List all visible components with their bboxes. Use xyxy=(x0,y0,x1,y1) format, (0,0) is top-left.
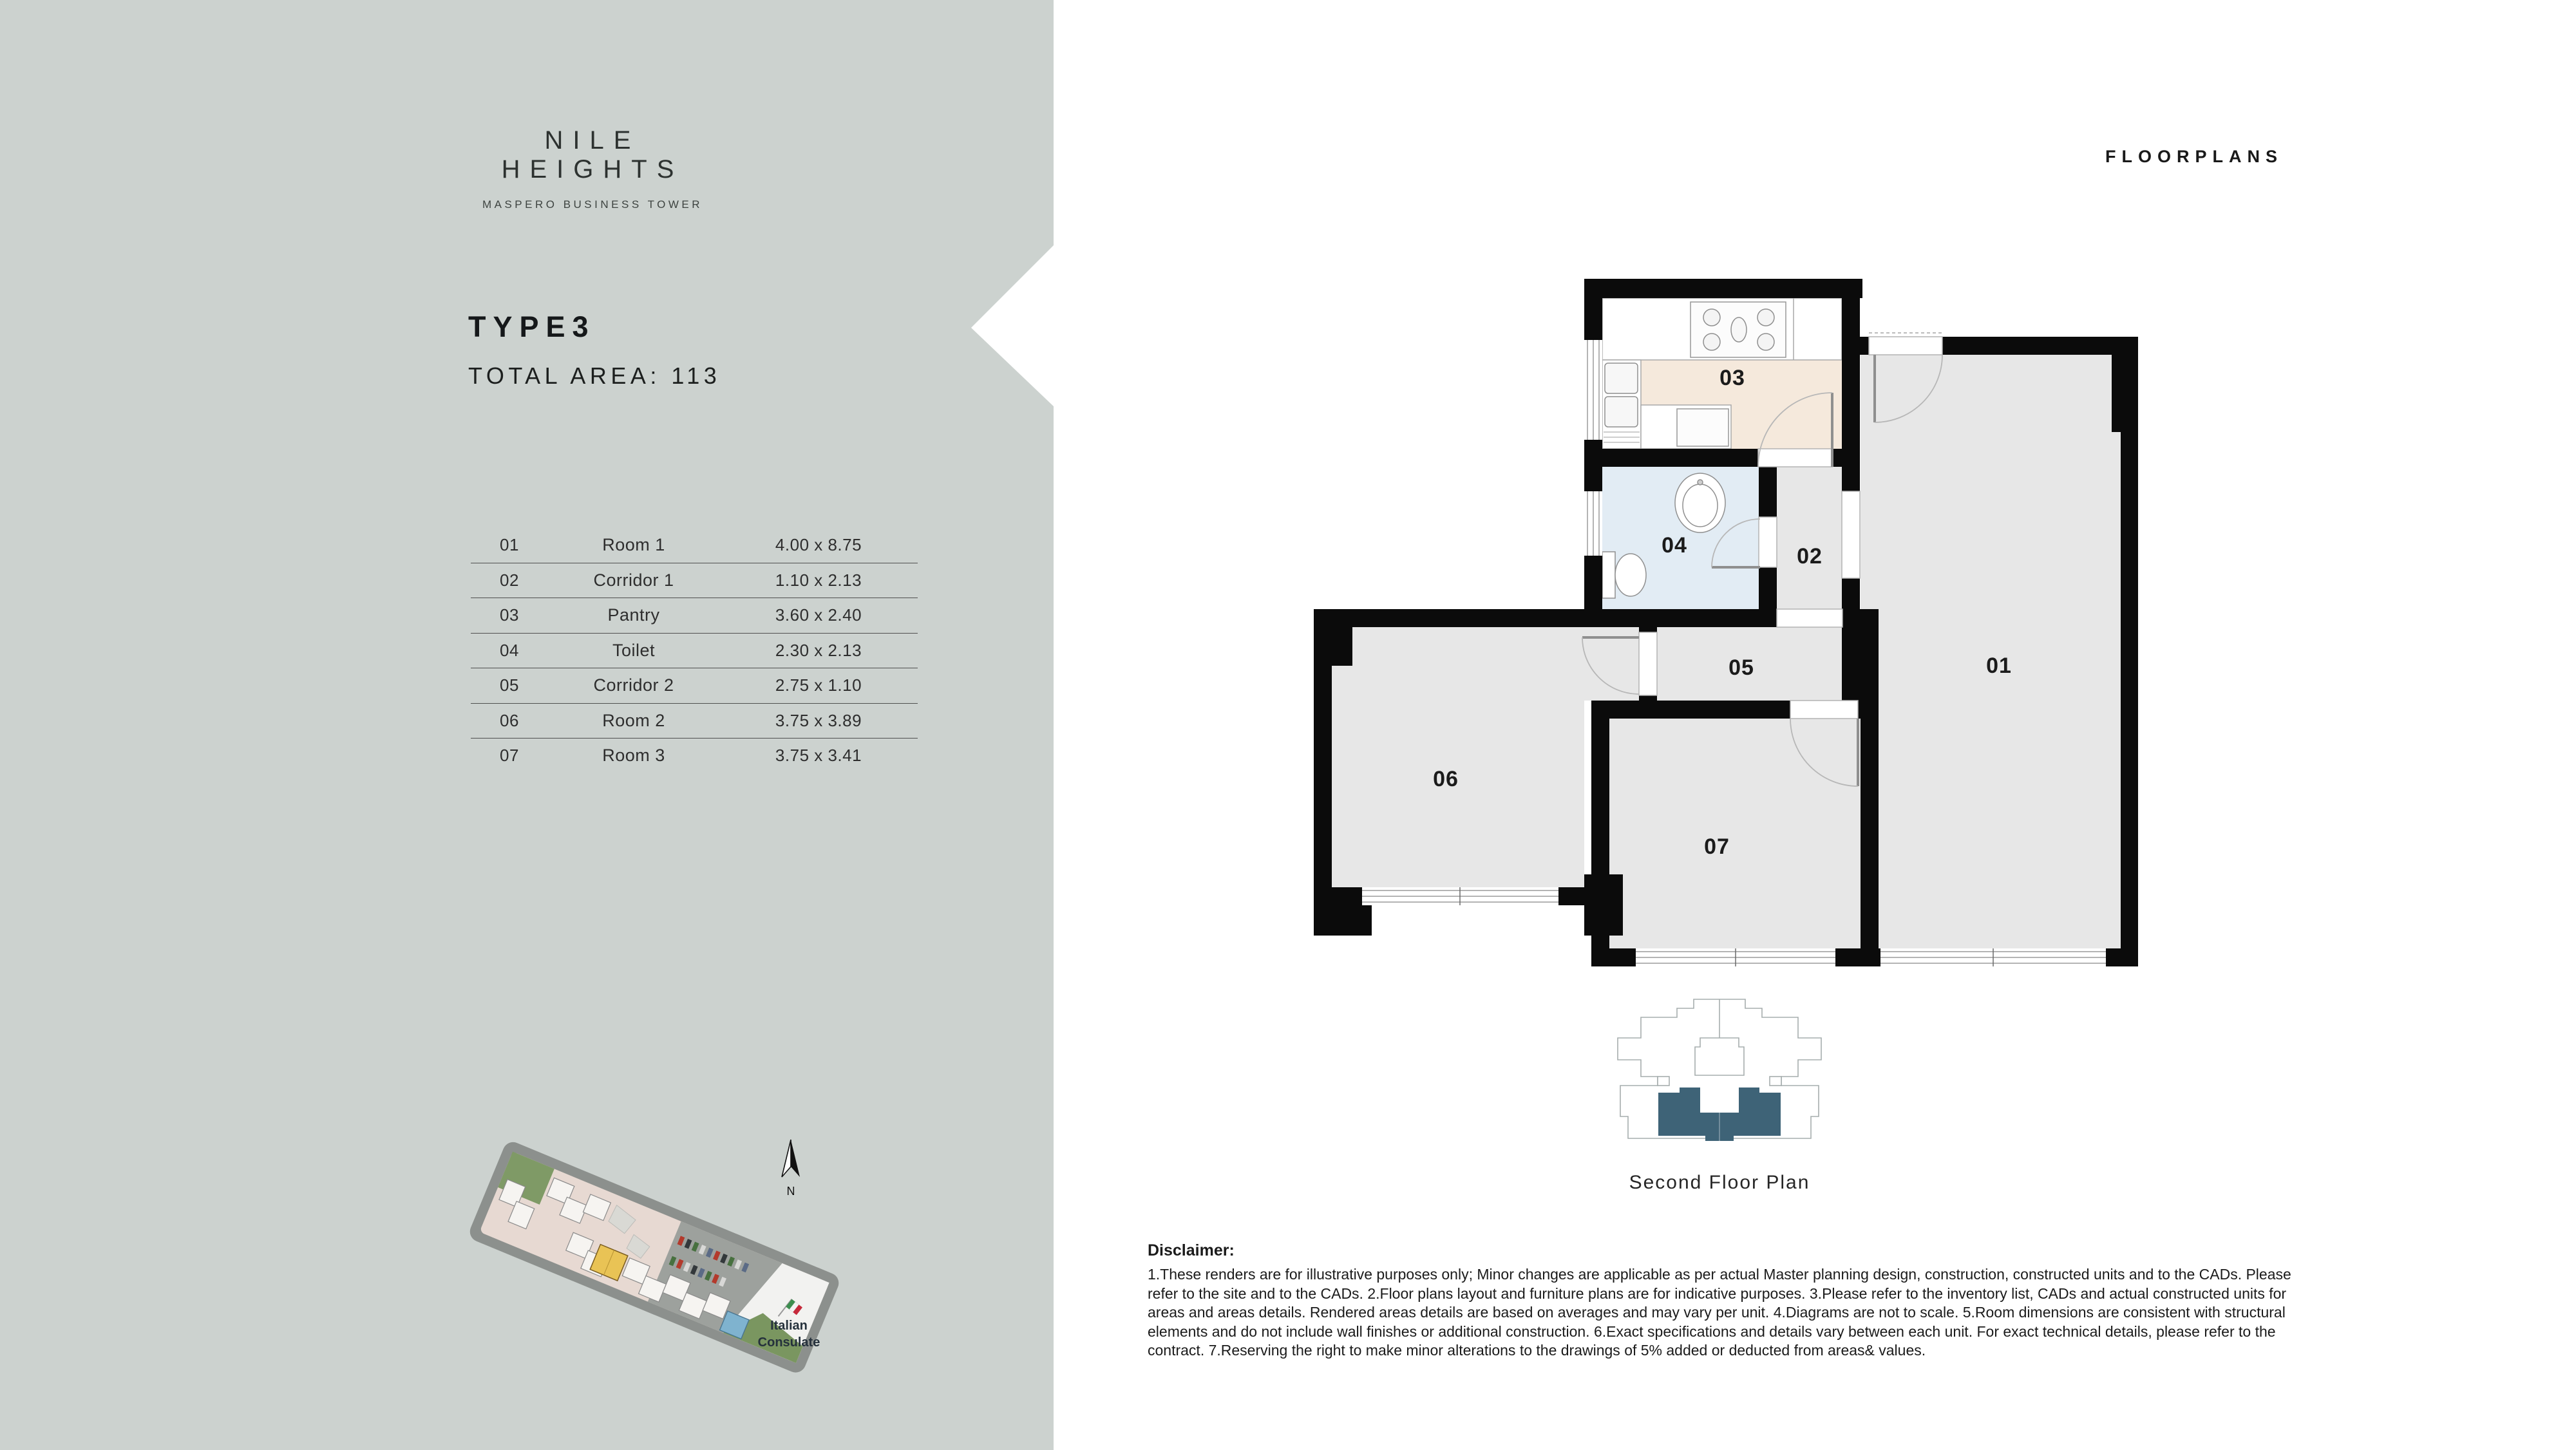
room-dimensions: 2.75 x 1.10 xyxy=(719,675,918,695)
page-title: FLOORPLANS xyxy=(2090,147,2283,167)
plan-label-01: 01 xyxy=(1986,654,2012,678)
plan-label-03: 03 xyxy=(1719,366,1745,390)
room-number: 05 xyxy=(471,675,548,695)
table-row: 01 Room 1 4.00 x 8.75 xyxy=(471,528,918,563)
table-row: 06 Room 2 3.75 x 3.89 xyxy=(471,704,918,739)
room-name: Corridor 2 xyxy=(548,675,719,695)
north-arrow-icon: N xyxy=(775,1137,806,1201)
keyplan-diagram xyxy=(1597,993,1842,1171)
panel-notch-shape xyxy=(971,245,1054,407)
room-number: 04 xyxy=(471,641,548,661)
room-dimensions: 2.30 x 2.13 xyxy=(719,641,918,661)
consulate-line1: Italian xyxy=(728,1317,850,1334)
brochure-page: NILE HEIGHTS MASPERO BUSINESS TOWER TYPE… xyxy=(0,0,2576,1450)
disclaimer-block: Disclaimer: 1.These renders are for illu… xyxy=(1148,1241,2310,1361)
room-dimensions: 3.75 x 3.41 xyxy=(719,746,918,766)
room-number: 06 xyxy=(471,711,548,731)
room-dimensions: 4.00 x 8.75 xyxy=(719,535,918,555)
disclaimer-heading: Disclaimer: xyxy=(1148,1241,2310,1260)
table-row: 02 Corridor 1 1.10 x 2.13 xyxy=(471,563,918,599)
table-row: 04 Toilet 2.30 x 2.13 xyxy=(471,634,918,669)
plan-label-02: 02 xyxy=(1797,544,1823,569)
room-number: 02 xyxy=(471,570,548,590)
brand-subtitle: MASPERO BUSINESS TOWER xyxy=(451,198,734,211)
brand-block: NILE HEIGHTS MASPERO BUSINESS TOWER xyxy=(451,126,734,211)
unit-type-title: TYPE3 xyxy=(468,310,596,344)
plan-label-04: 04 xyxy=(1662,533,1687,558)
siteplan-map xyxy=(451,1120,876,1417)
table-row: 07 Room 3 3.75 x 3.41 xyxy=(471,739,918,773)
consulate-line2: Consulate xyxy=(728,1334,850,1351)
room-name: Room 2 xyxy=(548,711,719,731)
room-dimensions: 3.60 x 2.40 xyxy=(719,605,918,625)
disclaimer-body: 1.These renders are for illustrative pur… xyxy=(1148,1265,2310,1361)
brand-name: NILE HEIGHTS xyxy=(451,126,734,184)
room-name: Room 1 xyxy=(548,535,719,555)
plan-label-07: 07 xyxy=(1704,834,1730,859)
room-dimensions: 1.10 x 2.13 xyxy=(719,570,918,590)
room-name: Room 3 xyxy=(548,746,719,766)
room-number: 01 xyxy=(471,535,548,555)
room-number: 07 xyxy=(471,746,548,766)
rooms-table: 01 Room 1 4.00 x 8.75 02 Corridor 1 1.10… xyxy=(471,528,918,773)
floorplan-drawing: 01 02 03 04 05 06 07 xyxy=(1314,279,2145,971)
room-number: 03 xyxy=(471,605,548,625)
room-dimensions: 3.75 x 3.89 xyxy=(719,711,918,731)
unit-total-area: TOTAL AREA: 113 xyxy=(468,362,721,390)
room-name: Pantry xyxy=(548,605,719,625)
keyplan-caption: Second Floor Plan xyxy=(1558,1172,1880,1194)
consulate-label: Italian Consulate xyxy=(728,1317,850,1351)
room-name: Toilet xyxy=(548,641,719,661)
north-label: N xyxy=(787,1185,795,1198)
room-name: Corridor 1 xyxy=(548,570,719,590)
table-row: 03 Pantry 3.60 x 2.40 xyxy=(471,598,918,634)
plan-label-05: 05 xyxy=(1728,655,1754,680)
plan-label-06: 06 xyxy=(1433,767,1459,791)
table-row: 05 Corridor 2 2.75 x 1.10 xyxy=(471,668,918,704)
